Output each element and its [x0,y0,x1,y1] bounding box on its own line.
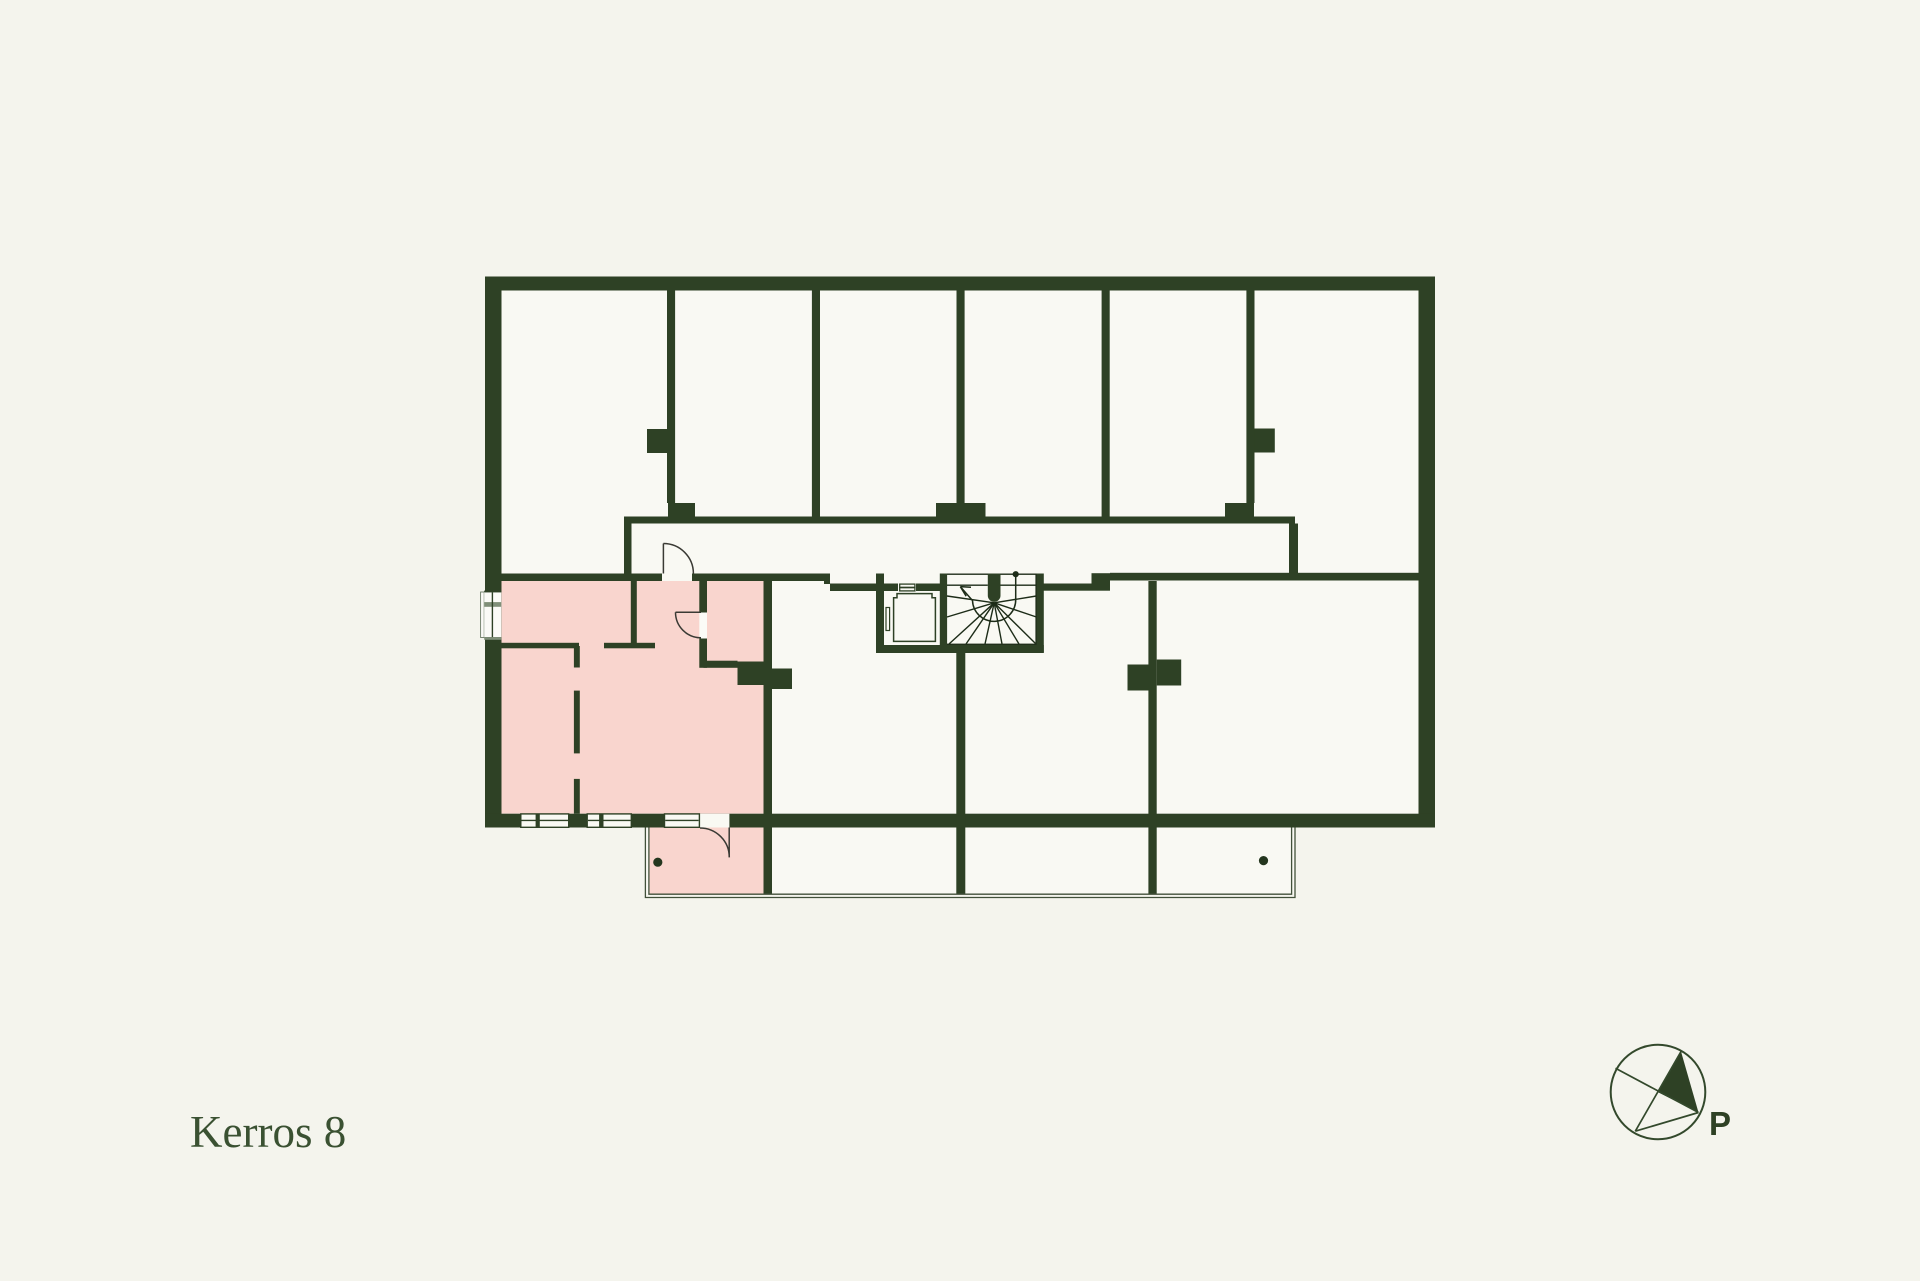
svg-text:Kerros 8: Kerros 8 [190,1107,346,1157]
svg-text:P: P [1709,1105,1731,1142]
